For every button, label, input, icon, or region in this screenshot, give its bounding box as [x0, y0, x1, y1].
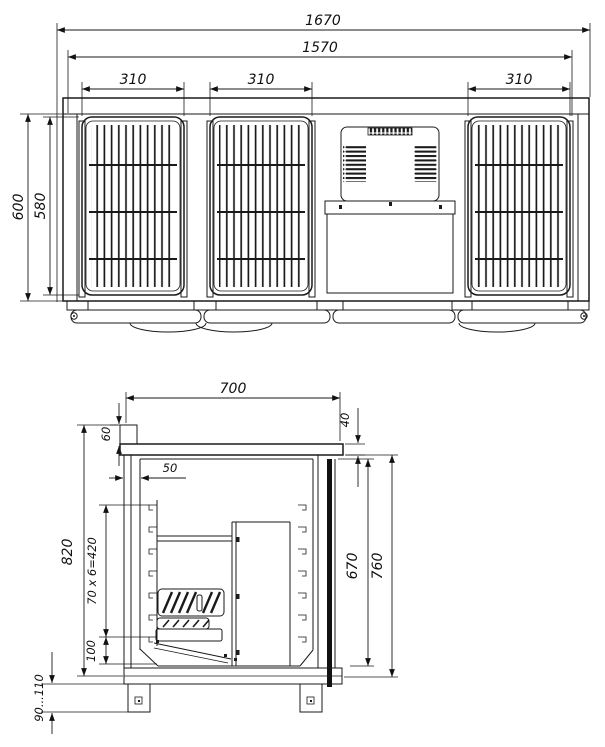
- door-1-wires: [91, 125, 175, 287]
- dim-inner-height-label: 670: [345, 553, 361, 580]
- grille-door-3: [465, 117, 573, 297]
- body-section: [124, 455, 318, 684]
- grille-door-1: [79, 117, 187, 297]
- dim-wall-thickness-label: 50: [163, 461, 178, 475]
- dim-worktop-offset-label: 40: [338, 413, 352, 428]
- door-2-wires: [219, 125, 303, 287]
- partition-panel: [232, 522, 290, 666]
- dim-shelf-pitch: 70 x 6=420: [85, 505, 149, 637]
- dim-overall-width-label: 1670: [305, 13, 341, 29]
- dim-bottom-clearance-label: 100: [84, 640, 98, 662]
- dim-splashback: 60: [99, 403, 122, 466]
- dim-wall-thickness: 50: [109, 461, 186, 478]
- dim-door-width-1: 310: [82, 72, 184, 116]
- dim-worktop-offset: 40: [338, 408, 365, 487]
- splashback: [120, 425, 137, 444]
- front-view: 1670 1570 310 310 310: [11, 13, 590, 332]
- dim-door-height-label: 580: [33, 193, 49, 220]
- dim-overall-height-label: 600: [11, 194, 27, 221]
- door-3-wires: [477, 125, 561, 287]
- dim-door-width-3-label: 310: [506, 72, 533, 88]
- side-view: 700 60 820 50 70 x 6=420: [32, 381, 398, 734]
- door-section: [327, 459, 335, 687]
- bottom-band: [63, 301, 589, 332]
- fin-strip: [157, 618, 209, 629]
- dim-front-height-label: 760: [370, 553, 386, 580]
- dim-leg-height-label: 90...110: [32, 674, 46, 722]
- refrigerated-counter-drawing: 1670 1570 310 310 310: [0, 0, 605, 747]
- evaporator-slot: [197, 595, 202, 611]
- dim-door-width-1-label: 310: [120, 72, 147, 88]
- dim-door-width-2: 310: [210, 72, 312, 116]
- dim-door-width-3: 310: [468, 72, 570, 116]
- machine-panel: [327, 214, 453, 293]
- dim-shelf-pitch-label: 70 x 6=420: [85, 537, 99, 605]
- dim-body-height-label: 820: [60, 539, 76, 566]
- shelf-rail-right: [298, 505, 306, 642]
- technical-drawing-page: 1670 1570 310 310 310: [0, 0, 605, 747]
- adjustable-foot-left: [128, 684, 150, 712]
- dim-splashback-label: 60: [99, 427, 113, 442]
- vent-slot-grille: [368, 128, 412, 135]
- tray-arc-2: [196, 323, 272, 332]
- condenser-unit: [325, 127, 455, 293]
- evaporator: [154, 589, 237, 663]
- tray-arc-3: [459, 323, 535, 332]
- base-and-feet: [124, 668, 342, 712]
- adjustable-foot-right: [300, 684, 322, 712]
- dim-doors-span-label: 1570: [302, 40, 338, 56]
- shelf-rail-left: [149, 500, 157, 646]
- tray-arc-1: [130, 323, 206, 332]
- louver-right: [414, 146, 437, 182]
- dim-door-width-2-label: 310: [248, 72, 275, 88]
- dim-depth-label: 700: [220, 381, 247, 397]
- louver-left: [343, 146, 366, 182]
- dim-inner-height: 670: [338, 459, 374, 666]
- grille-door-2: [207, 117, 315, 297]
- dim-depth: 700: [126, 381, 340, 441]
- worktop: [120, 425, 343, 455]
- dim-bottom-clearance: 100: [84, 637, 157, 664]
- drip-tray: [156, 629, 222, 641]
- drain-slope: [154, 643, 231, 659]
- dim-door-height: 580: [33, 117, 79, 295]
- wire-shelf: [157, 536, 232, 541]
